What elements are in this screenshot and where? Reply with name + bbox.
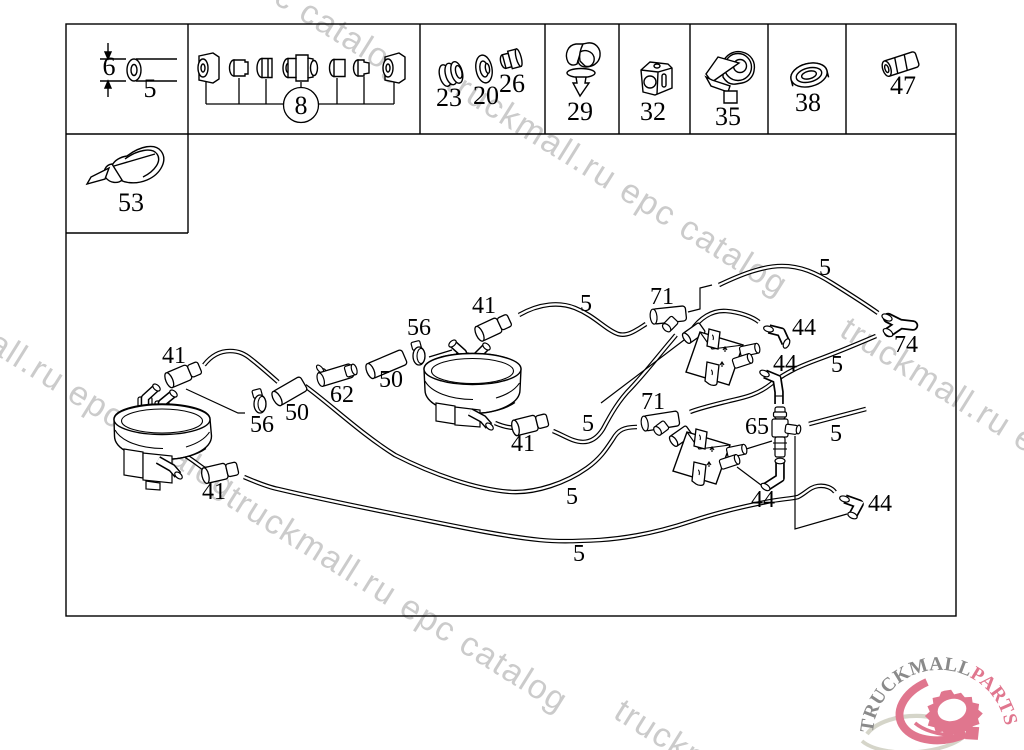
svg-text:8: 8 [295,91,308,120]
svg-text:5: 5 [831,352,843,378]
svg-text:41: 41 [472,293,496,319]
svg-text:5: 5 [582,411,594,437]
svg-text:50: 50 [285,400,309,426]
svg-text:44: 44 [792,315,816,341]
svg-text:41: 41 [162,343,186,369]
svg-text:5: 5 [580,291,592,317]
svg-text:5: 5 [830,421,842,447]
svg-text:41: 41 [202,479,226,505]
svg-text:47: 47 [890,71,916,100]
svg-text:50: 50 [379,367,403,393]
svg-text:53: 53 [118,188,144,217]
svg-text:5: 5 [819,255,831,281]
svg-text:41: 41 [511,431,535,457]
svg-text:26: 26 [499,69,525,98]
svg-text:29: 29 [567,97,593,126]
svg-text:20: 20 [473,81,499,110]
svg-text:5: 5 [566,484,578,510]
svg-text:44: 44 [751,487,775,513]
svg-text:23: 23 [436,83,462,112]
svg-text:56: 56 [250,412,274,438]
svg-text:74: 74 [894,332,918,358]
svg-text:38: 38 [795,88,821,117]
svg-text:32: 32 [640,97,666,126]
svg-text:65: 65 [745,414,769,440]
svg-text:56: 56 [407,315,431,341]
svg-text:44: 44 [773,351,797,377]
svg-text:35: 35 [715,102,741,131]
svg-text:5: 5 [573,541,585,567]
svg-text:62: 62 [330,382,354,408]
svg-text:71: 71 [650,284,674,310]
svg-text:44: 44 [868,491,892,517]
svg-text:6: 6 [103,52,116,81]
svg-text:5: 5 [144,74,157,103]
svg-text:71: 71 [641,389,665,415]
